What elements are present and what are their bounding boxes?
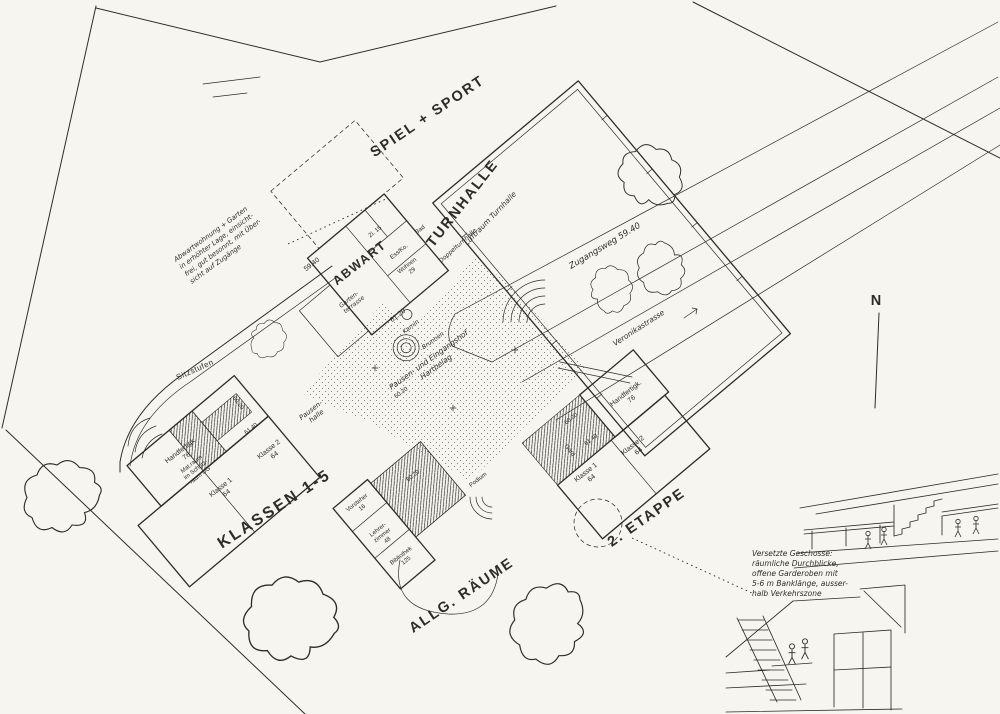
person-figure: [789, 644, 796, 664]
abwart-title: ABWART: [330, 238, 389, 288]
site-boundary-left: [2, 6, 96, 428]
sections-note: Versetzte Geschosse: räumliche Durchblic…: [752, 549, 848, 598]
bibliothek-label: Bibliothek 125: [389, 545, 418, 572]
svg-text:offene Garderoben mit: offene Garderoben mit: [752, 569, 839, 578]
tree: [583, 261, 639, 319]
vorsteher-label: Vorsteher 16: [345, 493, 373, 519]
abwart-note: Abwartwohnung + Garten in erhöhter Lage,…: [172, 202, 269, 286]
tree: [24, 461, 101, 532]
svg-text:Klasse 2: Klasse 2: [256, 439, 282, 461]
site-boundary-bottomleft: [6, 430, 305, 714]
svg-text:Versetzte Geschosse:: Versetzte Geschosse:: [752, 549, 832, 558]
area-label-allg-raeume: ALLG. RÄUME: [406, 554, 517, 637]
area-label-etappe: 2. ETAPPE: [605, 485, 689, 550]
right-klasse2-label: Klasse 2 64: [620, 435, 650, 463]
left-klasse1-label: Klasse 1 64: [208, 477, 238, 505]
section-sketch-lower: [726, 585, 905, 712]
svg-text:Klasse 1: Klasse 1: [208, 477, 234, 499]
svg-text:räumliche Durchblicke,: räumliche Durchblicke,: [752, 559, 839, 568]
lehrerzimmer-label: Lehrer- zimmer 48: [369, 522, 397, 550]
site-boundary-top: [96, 6, 556, 62]
area-label-klassen: KLASSEN 1-5: [215, 466, 335, 552]
tree: [234, 564, 350, 676]
north-arrow: N: [871, 293, 883, 408]
north-label: N: [871, 293, 883, 309]
footpath-label: Zugangsweg 59.40: [567, 221, 643, 272]
tree: [632, 238, 689, 298]
north-arrow-line: [875, 313, 879, 408]
person-figure: [955, 519, 961, 537]
street-direction-arrow: [684, 308, 697, 318]
left-klasse2-label: Klasse 2 64: [256, 439, 286, 467]
footpath-lower-edge: [492, 77, 998, 362]
note-leader-sections: [632, 538, 754, 594]
person-figure: [865, 531, 871, 549]
svg-text:5-6 m Banklänge, ausser-: 5-6 m Banklänge, ausser-: [752, 579, 848, 588]
street-lower-edge: [556, 145, 1000, 420]
room-label-bad: Bad: [414, 225, 426, 236]
podium-step-arcs: [470, 497, 492, 519]
room-label-essko: Ess/Ko.: [389, 243, 409, 261]
area-label-spiel-sport: SPIEL + SPORT: [368, 73, 488, 161]
tree: [495, 569, 603, 676]
person-figure: [973, 516, 979, 534]
street-name-label: Veronikastrasse: [611, 308, 666, 348]
plan-canvas: N SPIEL + SPORT KLASSEN 1-5 ALLG. RÄUME …: [0, 0, 1000, 714]
right-handfertig-label: Handfertigk. 76: [609, 379, 648, 414]
site-plan-drawing: N SPIEL + SPORT KLASSEN 1-5 ALLG. RÄUME …: [0, 0, 1000, 714]
svg-text:halb Verkehrszone: halb Verkehrszone: [752, 589, 822, 598]
terrace-edge-outer: [120, 266, 332, 472]
boundary-tick-marks: [203, 77, 260, 97]
person-figure: [802, 639, 809, 659]
room-label-wohnen: Wohnen 29: [397, 257, 423, 281]
svg-text:Vorsteher: Vorsteher: [345, 493, 369, 514]
left-classroom-wing: [104, 376, 320, 587]
person-figure: [881, 527, 887, 545]
svg-text:Klasse 2: Klasse 2: [620, 435, 646, 457]
footpath-upper-edge: [455, 22, 998, 314]
room-label-zi: Zi. 15: [368, 225, 384, 239]
elevation-mark: 61.40: [244, 422, 260, 436]
